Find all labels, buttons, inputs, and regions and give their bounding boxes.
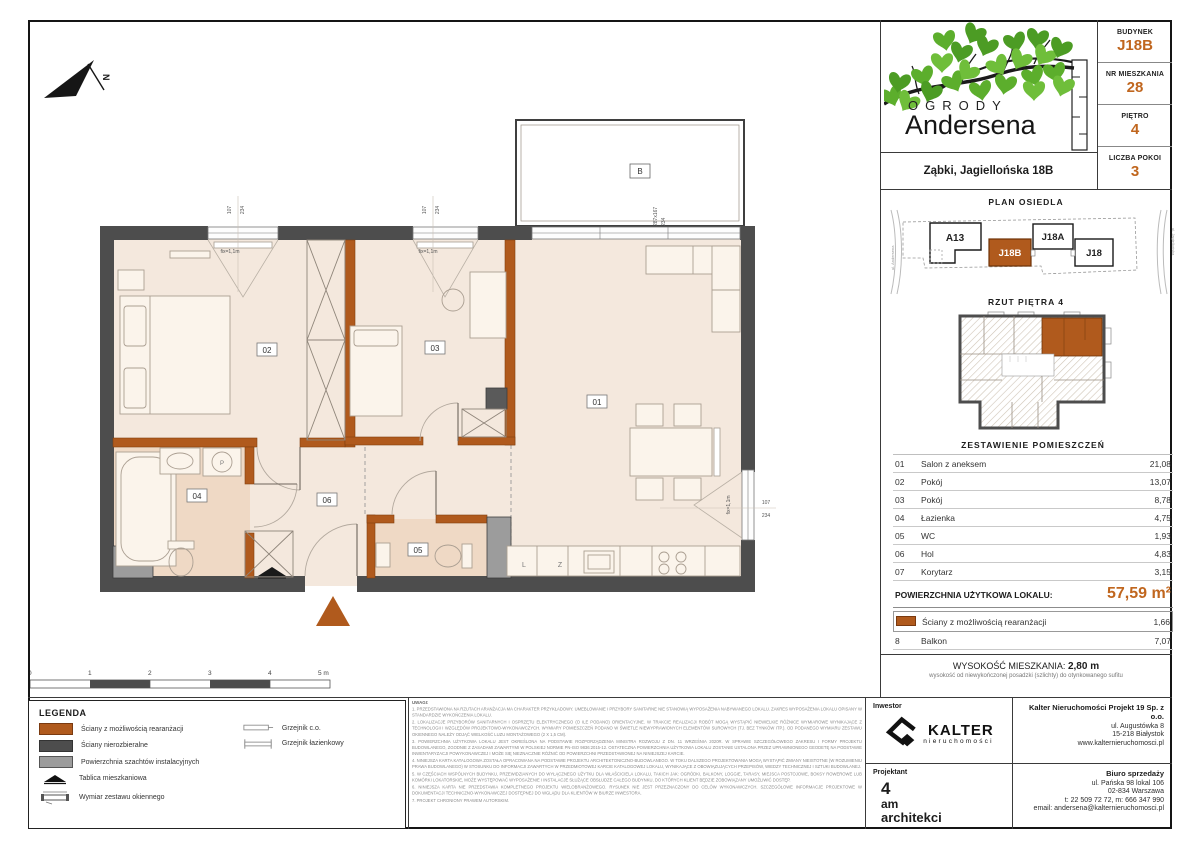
dishwasher-letter: Z (558, 562, 563, 569)
legend: LEGENDA Ściany z możliwością rearanżacji… (28, 700, 406, 829)
developer-website: www.kalternieruchomosci.pl (1020, 740, 1164, 747)
balcony-label: B (637, 167, 642, 176)
notes-title: UWAGI: (412, 700, 862, 705)
legend-item: Ściany nierozbieralne (39, 740, 242, 752)
kalter-sub: nieruchomości (923, 738, 994, 745)
room-06-label: 06 (323, 496, 332, 505)
legend-item: Wymiar zestawu okiennego (39, 789, 242, 805)
svg-text:234: 234 (762, 513, 771, 519)
floor-thumbnail (952, 310, 1117, 438)
table-row: 02Pokój13,07 (893, 473, 1173, 491)
divider (880, 654, 1172, 655)
building-cell: BUDYNEK J18B (1098, 20, 1172, 62)
balcony-row: 8Balkon7,07 (893, 632, 1173, 650)
balcony-dim-height: 234 (661, 217, 667, 226)
north-label: N (101, 74, 111, 81)
tenant-board-icon (40, 773, 70, 785)
site-plan-map: A13 J18B J18A J18 ul. Andersena ul. Jagi… (885, 208, 1175, 296)
unit-number-label: NR MIESZKANIA (1106, 71, 1164, 78)
room-04-label: 04 (193, 492, 202, 501)
note: 6. NINIEJSZA KARTA NIE PRZEDSTAWIA KOMPL… (412, 784, 862, 796)
apartment-height: WYSOKOŚĆ MIESZKANIA: 2,80 m wysokość od … (880, 661, 1172, 679)
room-count-cell: LICZBA POKOI 3 (1098, 147, 1172, 189)
note: 3. POWIERZCHNIA UŻYTKOWA LOKALU JEST OKR… (412, 739, 862, 757)
table-row: 03Pokój8,78 (893, 491, 1173, 509)
investor-label: Inwestor (873, 703, 1004, 710)
divider (880, 189, 1172, 190)
note: 1. PRZEDSTAWIONA NA RZUTACH ARANŻACJA MA… (412, 706, 862, 718)
sales-email: email: andersena@kalternieruchomosci.pl (1020, 805, 1164, 812)
shaft-swatch (39, 756, 73, 768)
height-note: wysokość od niewykończonej posadzki (szl… (880, 673, 1172, 679)
scale-bar: 0 1 2 3 4 5 m (28, 670, 330, 688)
legend-item: Grzejnik c.o. (242, 723, 344, 733)
svg-text:3: 3 (208, 670, 212, 677)
unit-number-cell: NR MIESZKANIA 28 (1098, 62, 1172, 104)
street-right-label: ul. Jagiellońska (1171, 228, 1175, 256)
building-a13-label: A13 (946, 233, 965, 244)
svg-text:107: 107 (227, 206, 233, 215)
table-row: 04Łazienka4,75 (893, 509, 1173, 527)
designer-cell: Projektant 4 am architekci (866, 764, 1011, 828)
floor-plan: N B 287x167 234 (0, 0, 880, 700)
designer-label: Projektant (873, 769, 1004, 776)
fridge-letter: L (522, 562, 526, 569)
floor-value: 4 (1131, 121, 1139, 138)
svg-text:4: 4 (268, 670, 272, 677)
window-dimension-icon (40, 789, 70, 805)
height-label: WYSOKOŚĆ MIESZKANIA: (953, 661, 1066, 671)
apartment-card-sheet: N B 287x167 234 (0, 0, 1200, 849)
entrance-arrow-icon (316, 596, 350, 626)
svg-text:107: 107 (762, 500, 771, 506)
north-compass-icon: N (44, 60, 111, 98)
room-count-value: 3 (1131, 163, 1139, 180)
building-value: J18B (1117, 37, 1153, 54)
birch-trunk (1072, 60, 1087, 150)
room-01-label: 01 (593, 398, 602, 407)
room-count-label: LICZBA POKOI (1109, 155, 1161, 162)
sales-office-label: Biuro sprzedaży (1020, 769, 1164, 778)
floor-thumb-title: RZUT PIĘTRA 4 (880, 297, 1172, 307)
orange-wall-swatch (39, 723, 73, 735)
svg-text:5 m: 5 m (318, 670, 329, 677)
table-row: 01Salon z aneksem21,08 (893, 455, 1173, 473)
street-left-label: ul. Andersena (890, 245, 895, 270)
kalter-logo-icon (883, 716, 917, 750)
sales-phone: t: 22 509 72 72, m: 666 347 990 (1020, 797, 1164, 804)
room-02-label: 02 (263, 346, 272, 355)
svg-text:fix=1,1m: fix=1,1m (220, 249, 239, 255)
note: 5. W CZĘŚCIACH WSPÓLNYCH BUDYNKU, PRZEWI… (412, 771, 862, 783)
unit-number-value: 28 (1127, 79, 1144, 96)
balcony: B 287x167 234 (516, 120, 744, 226)
room-schedule-title: ZESTAWIENIE POMIESZCZEŃ (893, 440, 1173, 455)
note: 7. PROJEKT CHRONIONY PRAWEM AUTORSKIM. (412, 797, 862, 803)
building-j18-label: J18 (1086, 248, 1102, 259)
legend-title: LEGENDA (39, 708, 395, 718)
usable-area-label: POWIERZCHNIA UŻYTKOWA LOKALU: (895, 590, 1053, 600)
washer-letter: P (220, 461, 224, 467)
orange-wall-swatch (896, 616, 916, 626)
building-j18a-label: J18A (1042, 232, 1065, 243)
project-address: Ząbki, Jagiellońska 18B (881, 153, 1096, 189)
divider (408, 697, 409, 829)
svg-text:0: 0 (28, 670, 32, 677)
radiator-icon (242, 723, 274, 733)
usable-area-value: 57,59 m² (1107, 585, 1171, 603)
investor-cell: Inwestor KALTER nieruchomości (866, 698, 1011, 762)
legend-item: Grzejnik łazienkowy (242, 738, 344, 750)
highlighted-apartment (1042, 318, 1102, 356)
divider (880, 20, 881, 697)
bathroom-radiator-icon (242, 738, 274, 750)
note: 2. LOKALIZACJE PRZYBORÓW SANITARNYCH I O… (412, 719, 862, 737)
legend-item: Powierzchnia szachtów instalacyjnych (39, 756, 242, 768)
room-05-label: 05 (414, 546, 423, 555)
usable-area-row: POWIERZCHNIA UŻYTKOWA LOKALU: 57,59 m² (893, 581, 1173, 608)
legend-item: Ściany z możliwością rearanżacji (39, 723, 242, 735)
developer-name: Kalter Nieruchomości Projekt 19 Sp. z o.… (1020, 703, 1164, 721)
balcony-dim-width: 287x167 (653, 207, 659, 226)
svg-text:fix=1,1m: fix=1,1m (726, 495, 732, 514)
floor-label: PIĘTRO (1121, 113, 1148, 120)
table-row: 07Korytarz3,15 (893, 563, 1173, 581)
rearrangeable-walls-row: Ściany z możliwością rearanżacji 1,66 (893, 611, 1173, 632)
floor-cell: PIĘTRO 4 (1098, 105, 1172, 147)
developer-address-cell: Kalter Nieruchomości Projekt 19 Sp. z o.… (1013, 698, 1171, 762)
svg-text:107: 107 (422, 206, 428, 215)
unit-header: BUDYNEK J18B NR MIESZKANIA 28 PIĘTRO 4 L… (1098, 20, 1172, 189)
sales-office-cell: Biuro sprzedaży ul. Pańska 98 lokal 106 … (1013, 764, 1171, 828)
room-03-label: 03 (431, 344, 440, 353)
room-schedule: ZESTAWIENIE POMIESZCZEŃ 01Salon z anekse… (893, 440, 1173, 650)
table-row: 06Hol4,83 (893, 545, 1173, 563)
brand-line2: Andersena (905, 110, 1036, 141)
kalter-name: KALTER (928, 722, 994, 739)
svg-text:234: 234 (240, 206, 246, 215)
height-value: 2,80 m (1068, 661, 1099, 672)
building-j18b-label: J18B (999, 248, 1022, 259)
svg-text:1: 1 (88, 670, 92, 677)
table-row: 05WC1,93 (893, 527, 1173, 545)
note: 4. NINIEJSZA KARTA KATALOGOWA ZOSTAŁA OP… (412, 758, 862, 770)
architect-logo: 4 am architekci (881, 780, 1004, 824)
dark-wall-swatch (39, 740, 73, 752)
svg-text:2: 2 (148, 670, 152, 677)
svg-text:fix=1,1m: fix=1,1m (418, 249, 437, 255)
site-plan-title: PLAN OSIEDLA (880, 197, 1172, 207)
svg-text:234: 234 (435, 206, 441, 215)
building-label: BUDYNEK (1117, 29, 1153, 36)
legend-item: Tablica mieszkaniowa (39, 773, 242, 785)
notes-block: UWAGI: 1. PRZEDSTAWIONA NA RZUTACH ARANŻ… (412, 700, 864, 829)
